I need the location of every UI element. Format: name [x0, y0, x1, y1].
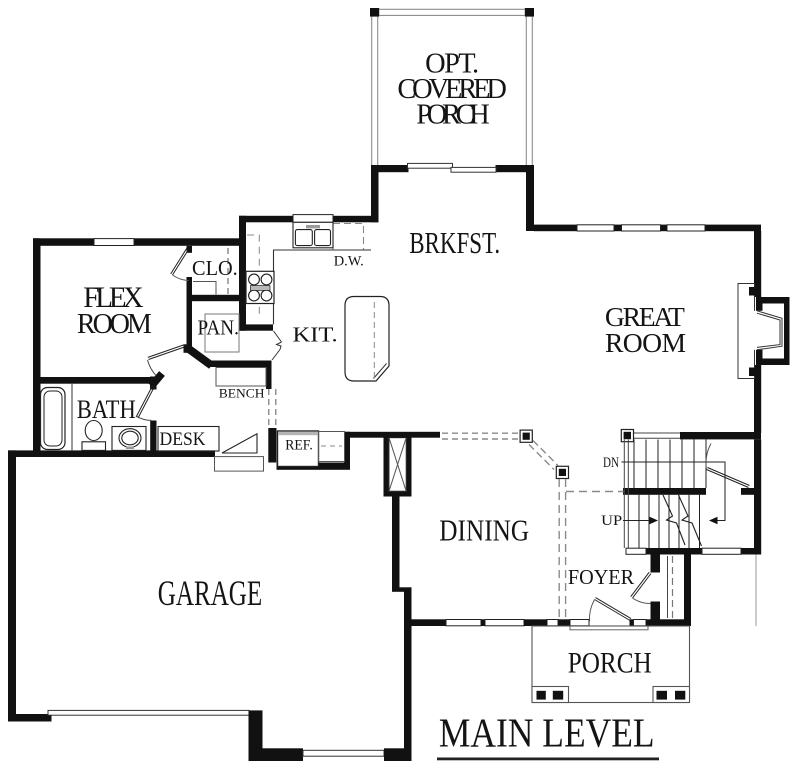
svg-text:PORCH: PORCH	[416, 99, 490, 130]
svg-text:PORCH: PORCH	[568, 648, 652, 680]
svg-text:DINING: DINING	[439, 514, 529, 548]
svg-text:ROOM: ROOM	[605, 327, 686, 358]
svg-text:PAN.: PAN.	[198, 316, 239, 340]
svg-text:KIT.: KIT.	[293, 323, 338, 347]
svg-text:CLO.: CLO.	[192, 256, 238, 280]
svg-text:DESK: DESK	[160, 430, 207, 450]
svg-text:D.W.: D.W.	[334, 254, 364, 270]
svg-text:BRKFST.: BRKFST.	[409, 226, 500, 260]
svg-text:GARAGE: GARAGE	[158, 573, 263, 613]
svg-text:REF.: REF.	[285, 438, 313, 454]
svg-text:BATH: BATH	[77, 395, 136, 424]
svg-text:UP: UP	[601, 513, 622, 529]
svg-text:BENCH: BENCH	[219, 386, 265, 401]
svg-text:FOYER: FOYER	[568, 567, 634, 589]
svg-text:DN: DN	[603, 455, 619, 471]
svg-text:MAIN LEVEL: MAIN LEVEL	[439, 710, 655, 756]
svg-text:ROOM: ROOM	[77, 309, 152, 340]
